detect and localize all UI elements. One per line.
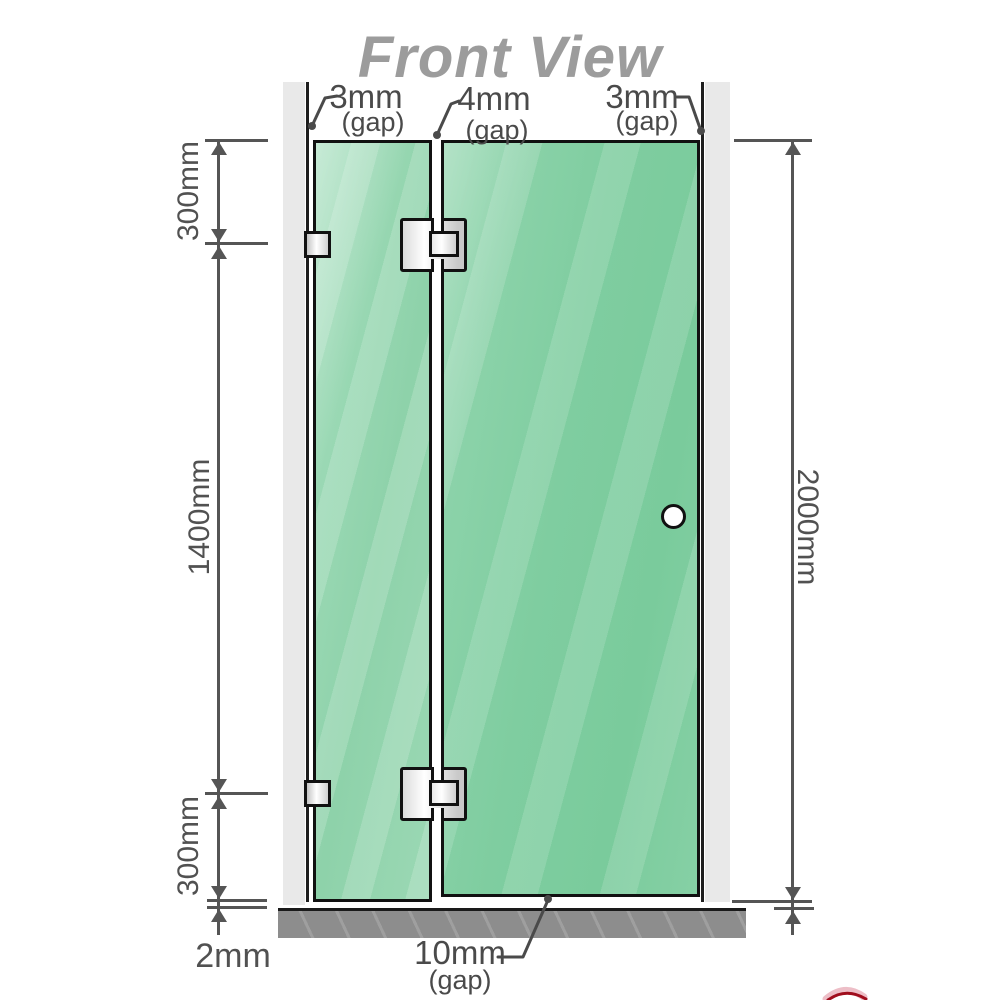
arrow-icon	[211, 229, 227, 242]
gap-note-right: (gap)	[615, 108, 678, 135]
dim-label-300mm-top: 300mm	[174, 141, 204, 241]
arrow-icon	[211, 909, 227, 922]
tick-glass-bottom-right	[732, 900, 812, 903]
tick-glass-bottom-left	[207, 899, 267, 902]
dim-label-1400mm: 1400mm	[185, 459, 215, 576]
hinge-clamp	[429, 780, 459, 806]
arrow-icon	[211, 246, 227, 259]
front-view-diagram: Front View 300mm 1400mm 300mm 2mm	[0, 0, 1000, 1000]
gap-note-left: (gap)	[341, 109, 404, 136]
right-wall-edge-line	[701, 82, 704, 902]
left-wall-edge-line	[306, 82, 309, 902]
leader-line-4mm-middle	[437, 101, 459, 135]
tick-300mm-bottom	[205, 792, 268, 795]
leader-dot	[433, 131, 441, 139]
red-swoosh-mark	[826, 990, 864, 999]
hinge-gap-slot	[431, 767, 444, 780]
right-wall-strip	[705, 82, 730, 902]
gap-label-4mm-middle: 4mm	[457, 82, 530, 115]
gap-note-middle: (gap)	[465, 117, 528, 144]
dim-label-2mm: 2mm	[195, 939, 271, 973]
bottom-wall-bracket	[304, 780, 331, 807]
arrow-icon	[785, 911, 801, 924]
bottom-hinge	[400, 767, 467, 821]
gap-note-bottom: (gap)	[428, 967, 491, 994]
arrow-icon	[785, 142, 801, 155]
hinge-gap-slot	[431, 808, 444, 821]
arrow-icon	[211, 796, 227, 809]
hinge-gap-slot	[431, 218, 444, 231]
tick-300mm-top	[205, 242, 268, 245]
hinge-clamp	[429, 231, 459, 257]
hinge-gap-slot	[431, 259, 444, 272]
tick-floor-top-right	[774, 907, 814, 910]
left-dimension-line	[217, 141, 220, 935]
leader-line-3mm-right	[677, 97, 701, 131]
floor-strip	[278, 908, 746, 938]
left-wall-strip	[283, 82, 305, 905]
arrow-icon	[211, 779, 227, 792]
arrow-icon	[785, 887, 801, 900]
arrow-icon	[211, 886, 227, 899]
leader-dot	[308, 122, 316, 130]
dim-label-2000mm: 2000mm	[792, 469, 822, 586]
door-handle-knob	[661, 504, 686, 529]
top-wall-bracket	[304, 231, 331, 258]
dim-label-300mm-bottom: 300mm	[174, 796, 204, 896]
red-swoosh-mark	[828, 993, 866, 1000]
top-hinge	[400, 218, 467, 272]
arrow-icon	[211, 142, 227, 155]
